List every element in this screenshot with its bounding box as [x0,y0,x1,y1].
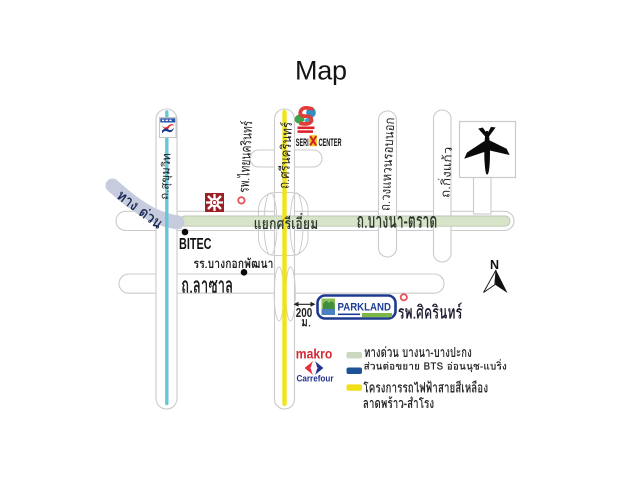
svg-text:CENTER: CENTER [319,137,342,149]
svg-text:Map: Map [295,56,347,86]
svg-text:Carrefour: Carrefour [297,374,334,384]
svg-text:N: N [490,258,499,272]
svg-text:200: 200 [296,306,313,320]
svg-text:PARKLAND: PARKLAND [338,302,392,314]
svg-text:BITEC: BITEC [179,236,212,253]
svg-text:SERI: SERI [296,137,309,149]
svg-text:makro: makro [296,347,333,362]
